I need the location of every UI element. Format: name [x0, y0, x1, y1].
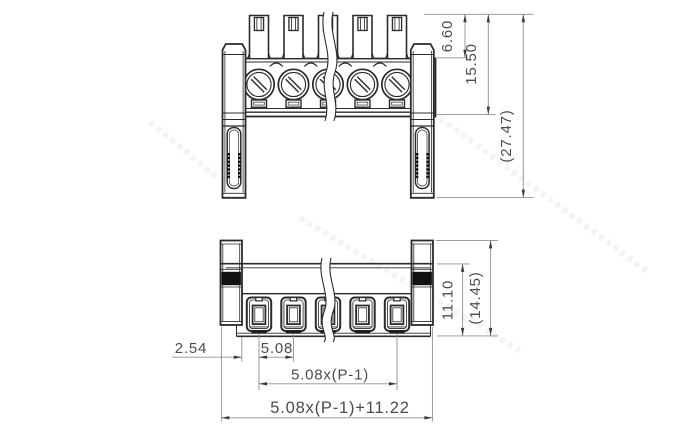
pin-4	[351, 16, 374, 59]
dim-body-height: 11.10	[440, 280, 457, 320]
slot-4	[350, 298, 374, 334]
left-flange	[223, 44, 246, 198]
slot-1	[247, 298, 271, 334]
dim-edge-to-first-pole: 2.54	[175, 340, 207, 357]
dim-pole-pitch: 5.08	[261, 340, 293, 357]
terminal-block-drawing: 6.60 15.50 (27.47)	[0, 0, 680, 440]
slot-2	[281, 298, 305, 334]
bottom-view	[221, 241, 434, 343]
dim-pole-span: 5.08x(P-1)	[291, 367, 369, 384]
front-view	[223, 12, 436, 198]
dim-pin-exposure: 6.60	[439, 20, 456, 52]
slot-5	[385, 298, 409, 334]
left-flange-bar	[221, 241, 243, 326]
right-flange-bar	[412, 241, 434, 326]
right-flange	[411, 44, 434, 198]
screw-5	[382, 69, 412, 99]
technical-drawing-canvas: 6.60 15.50 (27.47)	[0, 0, 680, 440]
screw-4	[347, 69, 377, 99]
dim-overall-depth: (14.45)	[467, 271, 484, 324]
front-view-arrows	[463, 14, 525, 197]
dim-upper-body-height: 15.50	[463, 43, 480, 85]
dim-overall-width: 5.08x(P-1)+11.22	[270, 399, 410, 417]
pin-2	[282, 16, 305, 59]
pin-1	[248, 16, 271, 59]
screw-2	[278, 69, 308, 99]
screw-1	[244, 69, 274, 99]
pin-5	[386, 16, 409, 59]
dim-overall-height: (27.47)	[498, 109, 515, 162]
